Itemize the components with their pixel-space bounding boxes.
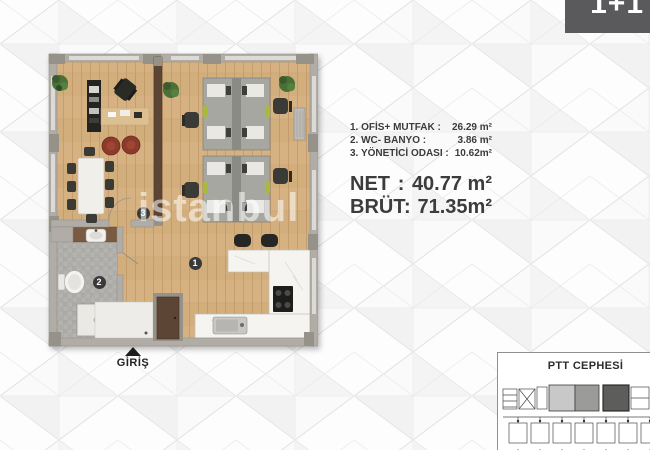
plant [52,75,68,91]
brut-area-row: BRÜT : 71.35m² [350,196,492,219]
legend-item-value: 3.86 m² [458,134,492,147]
divider-wall [154,57,162,225]
legend-item-value: 26.29 m² [452,121,492,134]
room-badge-1: 1 [189,257,202,270]
logo-text: 1+1 [590,0,644,21]
entrance-label: GİRİŞ [103,357,163,369]
cooktop [273,286,293,312]
keyplan-drawing [501,379,650,450]
brut-value: 71.35m² [418,196,493,219]
legend-item-label: 3. YÖNETİCİ ODASI : [350,147,449,160]
keyplan-inset: PTT CEPHESİ [497,352,650,450]
desk-bank-2 [203,156,270,222]
toilet [58,271,85,294]
radiator [294,108,305,140]
entrance-marker: GİRİŞ [103,347,163,369]
net-value: 40.77 m² [412,173,492,196]
brut-colon: : [404,196,418,219]
listing-image: istanbul 1 2 3 GİRİŞ 1. OFİS+ MUTFAK : 2… [0,0,650,450]
entrance-arrow-icon [125,347,141,356]
legend-item: 3. YÖNETİCİ ODASI : 10.62m² [350,147,492,160]
highlighted-units [549,385,629,411]
entrance-door [157,297,179,339]
legend-item-label: 1. OFİS+ MUTFAK : [350,121,441,134]
area-legend: 1. OFİS+ MUTFAK : 26.29 m² 2. WC- BANYO … [350,121,492,219]
wc-sink [86,229,106,242]
keyplan-title: PTT CEPHESİ [498,360,650,372]
plant [163,82,179,98]
net-label: NET [350,173,398,196]
legend-item-label: 2. WC- BANYO : [350,134,426,147]
plant [279,76,295,92]
kitchen-sink [213,317,247,334]
brut-label: BRÜT [350,196,404,219]
room-badge-3: 3 [137,207,150,220]
logo-badge: 1+1 [565,0,650,33]
legend-item-value: 10.62m² [455,147,492,160]
legend-item: 1. OFİS+ MUTFAK : 26.29 m² [350,121,492,134]
legend-item: 2. WC- BANYO : 3.86 m² [350,134,492,147]
room-badge-2: 2 [93,276,106,289]
floor-plan [45,50,318,350]
net-colon: : [398,173,412,196]
desk-bank-1 [203,78,270,150]
net-area-row: NET : 40.77 m² [350,173,492,196]
area-totals: NET : 40.77 m² BRÜT : 71.35m² [350,173,492,219]
